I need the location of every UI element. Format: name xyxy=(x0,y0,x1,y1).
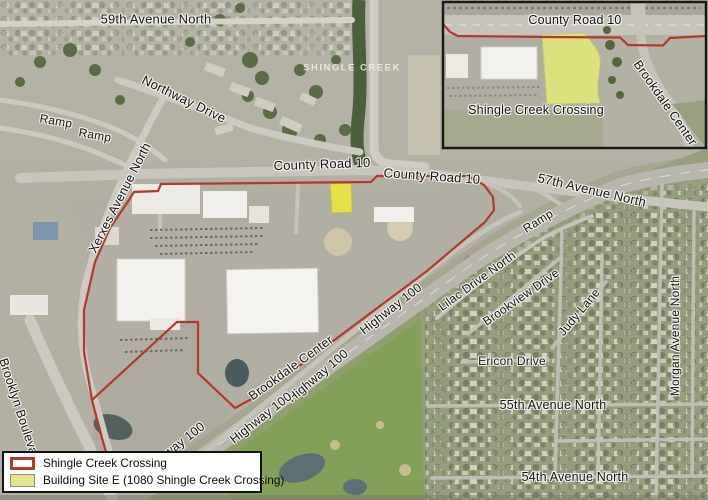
legend-label-site-e: Building Site E (1080 Shingle Creek Cros… xyxy=(43,473,284,487)
building-site-e xyxy=(330,184,352,214)
legend: Shingle Creek Crossing Building Site E (… xyxy=(2,451,262,493)
legend-swatch-site-e xyxy=(10,474,35,487)
legend-row-boundary: Shingle Creek Crossing xyxy=(10,456,256,470)
inset-map xyxy=(443,2,706,148)
legend-row-site-e: Building Site E (1080 Shingle Creek Cros… xyxy=(10,473,256,487)
bottom-edge xyxy=(0,495,708,500)
map-canvas xyxy=(0,0,708,500)
legend-label-boundary: Shingle Creek Crossing xyxy=(43,456,167,470)
aerial-map: 59th Avenue NorthNorthway DriveRampRampX… xyxy=(0,0,708,500)
inset-building-site-e xyxy=(542,33,600,104)
legend-swatch-boundary xyxy=(10,457,35,470)
